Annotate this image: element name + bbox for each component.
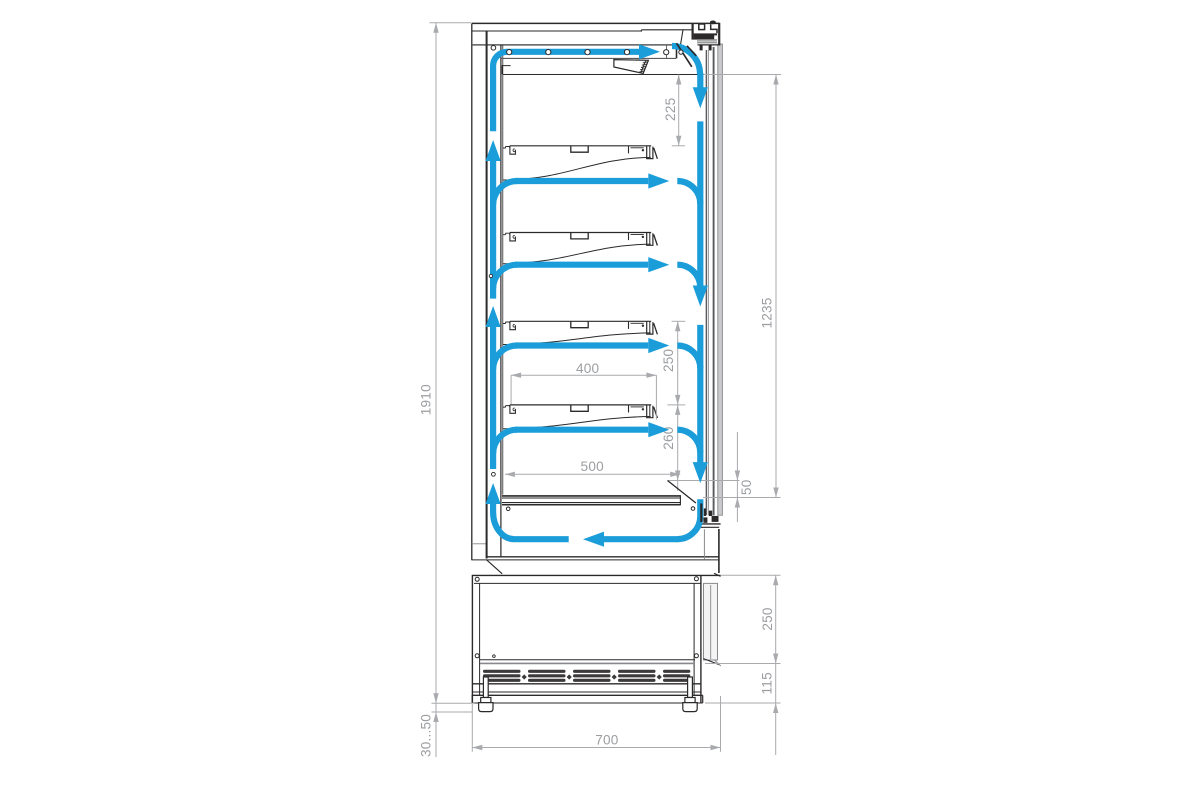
- svg-text:500: 500: [581, 459, 605, 474]
- svg-text:250: 250: [661, 349, 676, 373]
- svg-text:225: 225: [663, 98, 678, 121]
- svg-text:115: 115: [760, 672, 775, 694]
- svg-text:30...50: 30...50: [419, 714, 434, 757]
- svg-text:50: 50: [739, 479, 754, 495]
- svg-text:1910: 1910: [418, 384, 433, 415]
- svg-text:700: 700: [595, 733, 619, 748]
- svg-text:250: 250: [760, 607, 775, 631]
- svg-text:400: 400: [576, 361, 600, 376]
- svg-text:1235: 1235: [760, 297, 775, 328]
